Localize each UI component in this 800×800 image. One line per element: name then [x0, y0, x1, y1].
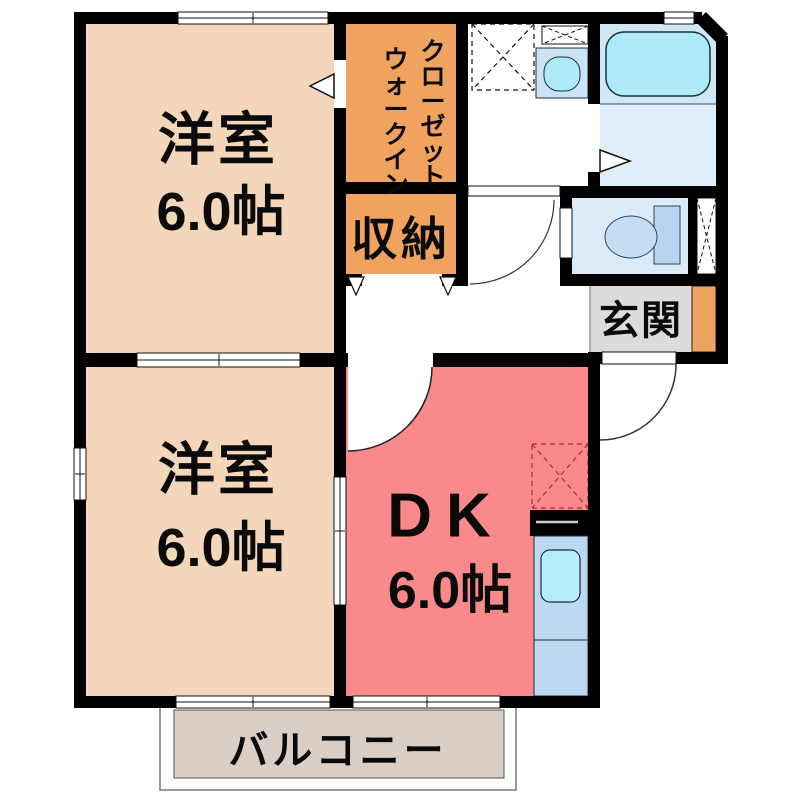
- entrance-doorway: [602, 352, 676, 364]
- wic-doorway: [334, 60, 346, 108]
- bathtub: [606, 32, 710, 96]
- walk-in-closet-label-right: クローゼット: [420, 38, 445, 191]
- window-bottom-dk: [353, 696, 500, 708]
- toilet-tank: [654, 206, 680, 264]
- entrance-door-arc: [600, 364, 676, 440]
- washroom-threshold: [468, 186, 560, 196]
- bath-doorway: [588, 104, 600, 172]
- bedroom-top-label: 洋室: [158, 108, 278, 172]
- sliding-door-bedroom2-dk: [334, 477, 346, 605]
- bathroom-floor: [600, 104, 716, 186]
- dk-size: 6.0帖: [388, 562, 512, 620]
- toilet-doorway: [560, 208, 572, 258]
- window-top-bedroom: [178, 12, 328, 24]
- hallway-door-arc: [470, 200, 554, 284]
- sliding-door-bedrooms: [137, 353, 300, 367]
- upper-cabinet: [542, 26, 588, 44]
- balcony-label: バルコニー: [228, 729, 447, 773]
- bath-window: [664, 12, 694, 24]
- dk-label: DK: [387, 482, 505, 551]
- entrance-label: 玄関: [599, 299, 683, 343]
- shoe-storage: [697, 198, 716, 274]
- storage-label: 収納: [351, 213, 451, 265]
- dk-doorway: [348, 353, 433, 367]
- window-bottom-bedroom2: [176, 696, 330, 708]
- storage-doorway: [362, 274, 442, 286]
- kitchen-sink: [541, 550, 580, 602]
- floor-plan-svg: 洋室 6.0帖 洋室 6.0帖 DK 6.0帖 クローゼット ウォークイン 収納…: [0, 0, 800, 800]
- shoe-cabinet-strip: [692, 286, 716, 352]
- washing-machine-pan: [472, 24, 534, 90]
- window-left-bedroom2: [74, 448, 86, 500]
- gas-range: [530, 510, 588, 536]
- washbasin-bowl: [544, 57, 580, 91]
- bedroom-top-size: 6.0帖: [156, 182, 285, 242]
- bedroom-bottom-size: 6.0帖: [156, 518, 285, 578]
- floor-plan-page: 洋室 6.0帖 洋室 6.0帖 DK 6.0帖 クローゼット ウォークイン 収納…: [0, 0, 800, 800]
- toilet-bowl: [605, 216, 657, 258]
- walk-in-closet-label-left: ウォークイン: [383, 46, 408, 199]
- bedroom-bottom-label: 洋室: [158, 438, 278, 502]
